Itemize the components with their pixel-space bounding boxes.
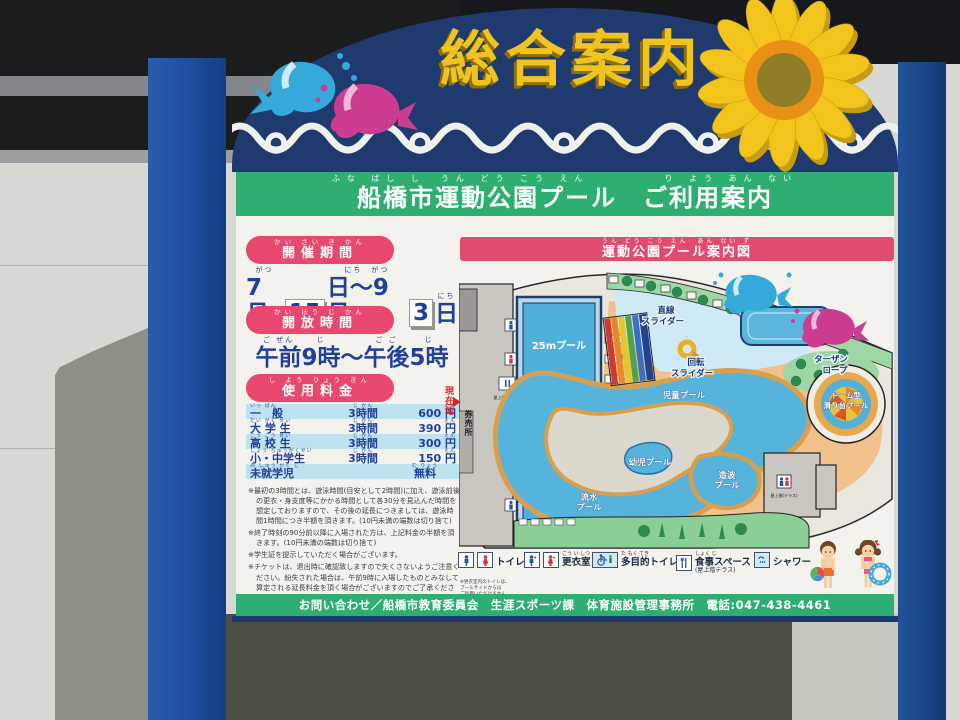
- time-segment: 〜: [341, 336, 364, 371]
- toilet-male-icon: [458, 552, 474, 568]
- period-banner-furigana: かい さい き かん: [246, 236, 394, 246]
- tarzan-rope-label-1: ターザン: [814, 354, 848, 365]
- boy-with-beachball-icon: [810, 541, 836, 588]
- ticket-office-label: 券売所: [463, 410, 474, 437]
- pool-25m-label: 25mプール: [532, 339, 586, 352]
- bottom-grass: [514, 513, 809, 548]
- fee-notes: ※最初の3時間とは、遊泳時間(目安として2時間)に加え、遊泳前後の更衣・身支度等…: [248, 486, 460, 605]
- current-location-arrow-icon: [453, 397, 461, 407]
- hours-banner: かい ほう じ かん 開放時間: [246, 306, 394, 334]
- fee-note: ※終了時刻の90分前以降に入場された方は、上記料金の半額を頂きます。(10円未満…: [248, 528, 460, 548]
- fee-row-elementary: しょう ちゅうがくせい小・中学生 じ かん3時間 えん150 円: [246, 449, 460, 464]
- girl-with-swim-ring-icon: [855, 540, 889, 587]
- fees-banner-label: 使用料金: [246, 384, 394, 399]
- dome-pool-label-2: 滑り台プール: [824, 400, 869, 410]
- fee-table: いっ ぱん一 般 じ かん3時間 えん600 円 だい がく せい大 学 生 じ…: [246, 404, 460, 479]
- legend-locker-label: 更衣室: [562, 558, 591, 568]
- fees-banner-furigana: し よう りょう きん: [246, 374, 394, 384]
- map-title-bar: うん どう こう えん あん ない ず 運動公園プール案内図: [460, 237, 894, 261]
- legend-meal: しょく じ 食事スペース (屋上階テラス): [676, 552, 751, 574]
- sunflower-icon: [684, 0, 884, 174]
- tarzan-rope-label-2: ロープ: [823, 365, 848, 376]
- sign-subtitle-bar: ふな ばし し うん どう こう えん り よう あん ない 船橋市運動公園プー…: [236, 172, 894, 216]
- fork-knife-icon: [676, 555, 692, 571]
- straight-slider-label-2: スライダー: [642, 316, 684, 327]
- period-banner: かい さい き かん 開催期間: [246, 236, 394, 264]
- spiral-slider-label-1: 回転: [687, 357, 705, 368]
- map-legend: トイレ ※更衣室内のトイレは、プールサイドからはご利用いただけません。 こう い…: [458, 548, 896, 594]
- legend-multipurpose-label: 多目的トイレ: [621, 558, 678, 568]
- opening-hours: ご ぜん午前 じ9時 〜 ご ご午後 じ5時: [246, 336, 458, 371]
- facility-map: 屋上階(テラス) 更衣室 更衣室: [459, 261, 894, 549]
- locker-female-icon: [543, 552, 559, 568]
- sunlit-wall-strip: [792, 614, 898, 720]
- time-segment: じ5時: [410, 336, 449, 371]
- toddler-pool-label: 幼児プール: [629, 457, 672, 468]
- wave-pool-label-2: プール: [714, 480, 740, 491]
- hours-banner-label: 開放時間: [246, 316, 394, 331]
- lazy-river-label-1: 流水: [580, 492, 598, 503]
- fee-row-general: いっ ぱん一 般 じ かん3時間 えん600 円: [246, 404, 460, 419]
- subtitle-furigana: ふな ばし し うん どう こう えん り よう あん ない: [236, 172, 894, 184]
- legend-locker: こう い しつ更衣室: [524, 552, 591, 568]
- map-title-furigana: うん どう こう えん あん ない ず: [460, 237, 894, 245]
- legend-meal-sub-label: (屋上階テラス): [695, 568, 751, 574]
- legend-shower: シャワー: [754, 552, 811, 568]
- locker-male-icon: [524, 552, 540, 568]
- wheelchair-icon: [592, 552, 618, 568]
- dome-pool-label-1: ドーム型: [831, 390, 861, 400]
- date-tile: 3: [407, 290, 435, 327]
- time-segment: じ9時: [301, 336, 340, 371]
- sign-post-left: [148, 58, 226, 720]
- child-pool-label: 児童プール: [662, 390, 706, 401]
- sign-content-panel: かい さい き かん 開催期間 がつ7月 15 にち がつ日〜9月 3 にち日 …: [236, 216, 894, 594]
- sign-post-right: [898, 62, 946, 720]
- contact-bar: お問い合わせ／船橋市教育委員会 生涯スポーツ課 体育施設管理事務所 電話:047…: [236, 594, 894, 616]
- period-banner-label: 開催期間: [246, 246, 394, 261]
- contact-text: お問い合わせ／船橋市教育委員会 生涯スポーツ課 体育施設管理事務所 電話:047…: [299, 597, 831, 613]
- lazy-river-label-2: プール: [576, 502, 602, 513]
- date-segment: にち日: [435, 292, 458, 327]
- hours-banner-furigana: かい ほう じ かん: [246, 306, 394, 316]
- toilet-female-icon: [477, 552, 493, 568]
- fee-row-university: だい がく せい大 学 生 じ かん3時間 えん390 円: [246, 419, 460, 434]
- map-title-text: 運動公園プール案内図: [460, 245, 894, 260]
- fee-note: ※学生証を提示していただく場合がございます。: [248, 550, 460, 560]
- legend-shower-label: シャワー: [773, 558, 811, 568]
- legend-toilet-label: トイレ: [496, 558, 525, 568]
- fee-row-preschool: み しゅう がく じ未就学児 む りょう無料: [246, 464, 460, 479]
- shadow-below-sign: [226, 614, 792, 720]
- sign-bottom-frame: [232, 616, 898, 622]
- signboard: 総合案内: [232, 8, 898, 622]
- time-segment: ご ご午後: [364, 336, 410, 371]
- shower-icon: [754, 552, 770, 568]
- fee-note: ※最初の3時間とは、遊泳時間(目安として2時間)に加え、遊泳前後の更衣・身支度等…: [248, 486, 460, 526]
- sign-shadow-on-wall: [55, 328, 148, 720]
- sign-arch-header: 総合案内: [232, 8, 898, 172]
- photo-of-pool-information-sign: 総合案内: [0, 0, 960, 720]
- straight-slider-label-1: 直線: [657, 305, 675, 316]
- kids-characters: [810, 540, 894, 596]
- terrace-label-right: 屋上階(テラス): [770, 492, 797, 498]
- legend-toilet: トイレ: [458, 552, 525, 568]
- legend-multipurpose: た もく てき多目的トイレ: [592, 552, 678, 568]
- fees-banner: し よう りょう きん 使用料金: [246, 374, 394, 402]
- fee-row-highschool: こう こう せい高 校 生 じ かん3時間 えん300 円: [246, 434, 460, 449]
- wall-seam: [0, 265, 148, 266]
- spiral-slider-label-2: スライダー: [671, 368, 713, 379]
- time-segment: ご ぜん午前: [255, 336, 301, 371]
- wave-pool-label-1: 造波: [718, 470, 736, 481]
- subtitle-text: 船橋市運動公園プール ご利用案内: [236, 184, 894, 212]
